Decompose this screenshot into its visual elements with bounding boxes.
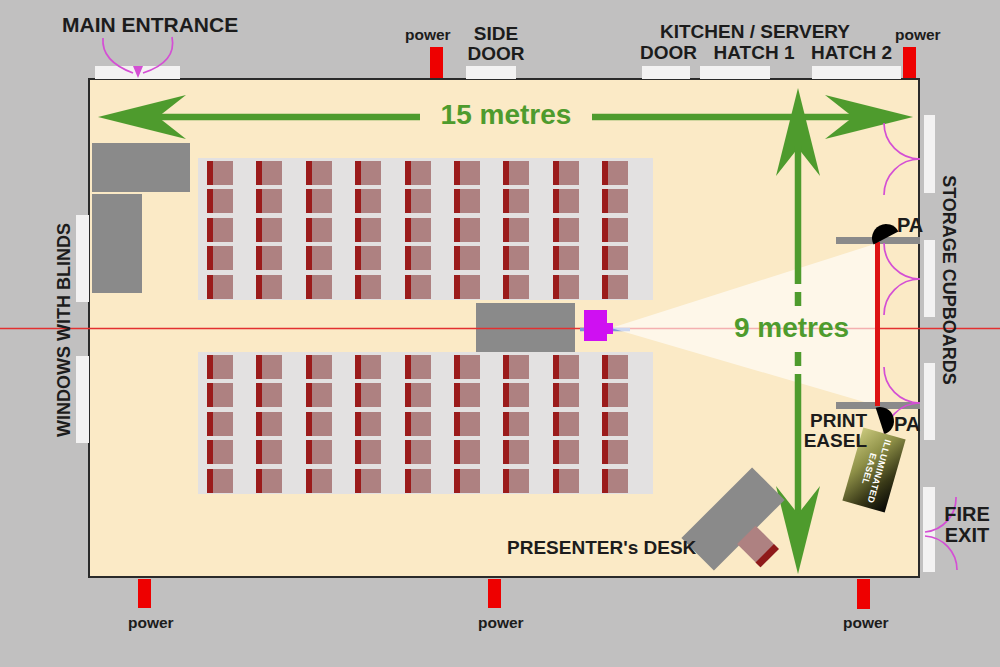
audience-chair xyxy=(553,246,579,270)
audience-chair xyxy=(503,189,529,213)
room-plan-diagram: ILLUMINATED EASEL MAIN ENTRANCE power po… xyxy=(0,0,1000,667)
storage-cupboard-2 xyxy=(924,240,935,317)
side-table-vertical xyxy=(92,194,142,293)
audience-chair xyxy=(503,161,529,185)
side-door xyxy=(466,66,516,79)
kitchen-servery-label: KITCHEN / SERVERY xyxy=(630,22,880,42)
audience-chair xyxy=(454,440,480,464)
main-entrance-label: MAIN ENTRANCE xyxy=(62,13,238,37)
audience-chair xyxy=(355,383,381,407)
kitchen-door xyxy=(642,66,690,79)
audience-chair xyxy=(256,383,282,407)
audience-chair xyxy=(306,412,332,436)
audience-chair xyxy=(405,218,431,242)
audience-chair xyxy=(306,161,332,185)
audience-chair xyxy=(405,440,431,464)
audience-chair xyxy=(256,189,282,213)
audience-chair xyxy=(256,440,282,464)
audience-chair xyxy=(405,469,431,493)
audience-chair xyxy=(503,355,529,379)
audience-chair xyxy=(355,161,381,185)
audience-chair xyxy=(306,440,332,464)
audience-chair xyxy=(306,246,332,270)
audience-chair xyxy=(503,412,529,436)
audience-chair xyxy=(207,161,233,185)
power-label-top-right: power xyxy=(895,26,941,44)
audience-chair xyxy=(553,440,579,464)
audience-chair xyxy=(553,383,579,407)
power-outlet-top-right xyxy=(903,47,916,78)
window-lower xyxy=(76,356,89,443)
audience-chair xyxy=(405,383,431,407)
audience-chair xyxy=(602,469,628,493)
audience-chair xyxy=(503,275,529,299)
audience-chair xyxy=(602,161,628,185)
audience-chair xyxy=(256,412,282,436)
main-entrance-door xyxy=(95,66,180,79)
presenter-desk-label: PRESENTER's DESK xyxy=(507,538,696,558)
seating-block-upper xyxy=(198,158,653,300)
audience-chair xyxy=(207,275,233,299)
audience-chair xyxy=(405,355,431,379)
audience-chair xyxy=(306,189,332,213)
audience-chair xyxy=(454,469,480,493)
room-width-label: 15 metres xyxy=(420,99,592,131)
side-table-horizontal xyxy=(92,143,190,192)
audience-chair xyxy=(355,355,381,379)
audience-chair xyxy=(355,218,381,242)
audience-chair xyxy=(405,189,431,213)
power-outlet-bottom-left xyxy=(138,579,151,608)
power-label-top-left: power xyxy=(405,26,451,44)
audience-chair xyxy=(355,246,381,270)
kitchen-hatch-1 xyxy=(700,66,770,79)
hatch-1-label: HATCH 1 xyxy=(714,43,795,63)
audience-chair xyxy=(256,218,282,242)
audience-chair xyxy=(602,218,628,242)
audience-chair xyxy=(602,383,628,407)
audience-chair xyxy=(355,440,381,464)
audience-chair xyxy=(454,383,480,407)
audience-chair xyxy=(602,440,628,464)
storage-label: STORAGE CUPBOARDS xyxy=(938,175,959,385)
audience-chair xyxy=(602,246,628,270)
print-easel-label: PRINTEASEL xyxy=(795,411,867,452)
audience-chair xyxy=(207,440,233,464)
power-outlet-top-left xyxy=(430,47,443,78)
pa-label-top: PA xyxy=(897,214,923,237)
audience-chair xyxy=(207,355,233,379)
room-depth-label: 9 metres xyxy=(719,312,864,344)
audience-chair xyxy=(454,189,480,213)
audience-chair xyxy=(553,161,579,185)
audience-chair xyxy=(503,246,529,270)
power-outlet-bottom-right xyxy=(857,579,870,609)
audience-chair xyxy=(355,412,381,436)
audience-chair xyxy=(553,355,579,379)
audience-chair xyxy=(256,161,282,185)
power-label-bottom-center: power xyxy=(478,614,524,632)
audience-chair xyxy=(602,275,628,299)
audience-chair xyxy=(256,275,282,299)
audience-chair xyxy=(503,469,529,493)
fire-exit-label: FIREEXIT xyxy=(936,504,998,547)
audience-chair xyxy=(405,246,431,270)
windows-label: WINDOWS WITH BLINDS xyxy=(54,223,75,437)
audience-chair xyxy=(256,469,282,493)
audience-chair xyxy=(405,275,431,299)
audience-chair xyxy=(355,275,381,299)
kitchen-door-label: DOOR xyxy=(640,43,697,63)
audience-chair xyxy=(553,218,579,242)
hatch-2-label: HATCH 2 xyxy=(811,43,892,63)
audience-chair xyxy=(207,189,233,213)
kitchen-doors-label-row: DOOR HATCH 1 HATCH 2 xyxy=(640,43,892,63)
audience-chair xyxy=(454,218,480,242)
audience-chair xyxy=(454,412,480,436)
storage-cupboard-3 xyxy=(924,363,935,440)
audience-chair xyxy=(553,275,579,299)
audience-chair xyxy=(256,355,282,379)
projector-table xyxy=(476,303,575,353)
audience-chair xyxy=(306,469,332,493)
kitchen-hatch-2 xyxy=(812,66,901,79)
projector-lens xyxy=(606,323,613,334)
seating-block-lower xyxy=(198,352,653,494)
audience-chair xyxy=(602,189,628,213)
audience-chair xyxy=(207,469,233,493)
window-upper xyxy=(76,215,89,302)
storage-cupboard-1 xyxy=(924,115,935,193)
pa-label-bottom: PA xyxy=(894,413,920,436)
audience-chair xyxy=(602,355,628,379)
audience-chair xyxy=(503,383,529,407)
audience-chair xyxy=(405,412,431,436)
audience-chair xyxy=(553,412,579,436)
power-label-bottom-right: power xyxy=(843,614,889,632)
audience-chair xyxy=(207,383,233,407)
audience-chair xyxy=(306,275,332,299)
audience-chair xyxy=(602,412,628,436)
audience-chair xyxy=(355,189,381,213)
audience-chair xyxy=(454,246,480,270)
power-outlet-bottom-center xyxy=(488,579,501,608)
audience-chair xyxy=(207,218,233,242)
audience-chair xyxy=(405,161,431,185)
audience-chair xyxy=(306,355,332,379)
audience-chair xyxy=(503,218,529,242)
audience-chair xyxy=(553,469,579,493)
audience-chair xyxy=(207,412,233,436)
power-label-bottom-left: power xyxy=(128,614,174,632)
audience-chair xyxy=(306,383,332,407)
audience-chair xyxy=(306,218,332,242)
audience-chair xyxy=(454,275,480,299)
audience-chair xyxy=(256,246,282,270)
fire-exit-door xyxy=(923,487,935,572)
audience-chair xyxy=(454,355,480,379)
audience-chair xyxy=(454,161,480,185)
side-door-label: SIDEDOOR xyxy=(458,24,534,65)
audience-chair xyxy=(207,246,233,270)
audience-chair xyxy=(553,189,579,213)
audience-chair xyxy=(355,469,381,493)
projector xyxy=(584,310,607,341)
audience-chair xyxy=(503,440,529,464)
